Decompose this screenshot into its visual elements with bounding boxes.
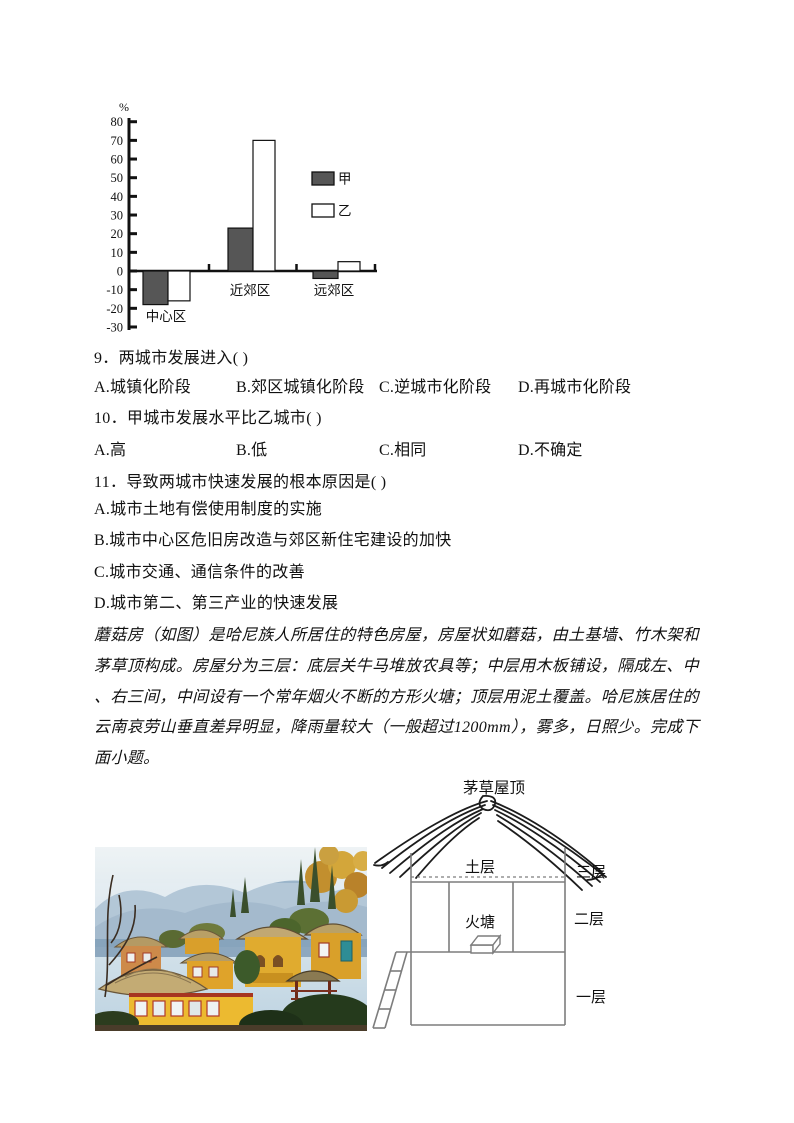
mushroom-house-passage: 蘑菇房（如图）是哈尼族人所居住的特色房屋，房屋状如蘑菇，由土基墙、竹木架和 茅草…: [94, 621, 724, 775]
svg-text:0: 0: [117, 265, 123, 279]
option-b: B.郊区城镇化阶段: [236, 380, 364, 396]
svg-text:50: 50: [111, 171, 124, 185]
svg-text:20: 20: [111, 227, 124, 241]
svg-text:40: 40: [111, 190, 124, 204]
exam-page: -30-20-1001020304050607080%中心区近郊区远郊区甲乙 9…: [0, 0, 794, 1123]
svg-text:近郊区: 近郊区: [230, 282, 271, 298]
svg-text:60: 60: [111, 153, 124, 167]
passage-line: 、右三间，中间设有一个常年烟火不断的方形火塘；顶层用泥土覆盖。哈尼族居住的: [94, 683, 724, 714]
svg-text:30: 30: [111, 209, 124, 223]
roof-label: 茅草屋顶: [463, 779, 525, 797]
svg-text:-20: -20: [106, 302, 123, 316]
urbanization-bar-chart: -30-20-1001020304050607080%中心区近郊区远郊区甲乙: [80, 95, 390, 340]
question-9-options: A.城镇化阶段 B.郊区城镇化阶段 C.逆城市化阶段 D.再城市化阶段: [94, 380, 754, 400]
svg-text:-30: -30: [106, 320, 123, 334]
option-d: D.再城市化阶段: [518, 380, 631, 396]
question-text: 导致两城市快速发展的根本原因是( ): [126, 474, 386, 491]
svg-text:甲: 甲: [338, 172, 352, 187]
question-10-stem: 10．甲城市发展水平比乙城市( ): [94, 411, 322, 427]
svg-text:乙: 乙: [338, 204, 352, 219]
option-c: C.逆城市化阶段: [379, 380, 491, 396]
option-a: A.城镇化阶段: [94, 380, 191, 396]
first-floor-label: 一层: [576, 990, 606, 1006]
svg-text:80: 80: [111, 115, 124, 129]
option-d: D.不确定: [518, 443, 583, 459]
second-floor-label: 二层: [574, 912, 604, 928]
svg-text:远郊区: 远郊区: [314, 282, 355, 298]
question-number: 10．: [94, 410, 127, 427]
foreground-building: [129, 993, 253, 1029]
firepit-box: [471, 936, 500, 953]
question-text: 两城市发展进入( ): [119, 350, 249, 367]
question-text: 甲城市发展水平比乙城市( ): [127, 410, 322, 427]
third-floor-label: 三层: [576, 865, 606, 881]
question-9-stem: 9．两城市发展进入( ): [94, 351, 248, 367]
option-c: C.相同: [379, 443, 426, 459]
passage-line: 茅草顶构成。房屋分为三层：底层关牛马堆放农具等；中层用木板铺设，隔成左、中: [94, 652, 724, 683]
option-a: A.高: [94, 443, 126, 459]
passage-line: 蘑菇房（如图）是哈尼族人所居住的特色房屋，房屋状如蘑菇，由土基墙、竹木架和: [94, 621, 724, 652]
question-11-stem: 11．导致两城市快速发展的根本原因是( ): [94, 475, 386, 491]
question-number: 9．: [94, 350, 119, 367]
question-11-option-b: B.城市中心区危旧房改造与郊区新住宅建设的加快: [94, 533, 452, 549]
option-b: B.低: [236, 443, 267, 459]
svg-text:中心区: 中心区: [146, 309, 187, 324]
question-11-option-d: D.城市第二、第三产业的快速发展: [94, 596, 338, 612]
question-number: 11．: [94, 474, 126, 491]
question-11-option-c: C.城市交通、通信条件的改善: [94, 565, 305, 581]
svg-text:-10: -10: [106, 283, 123, 297]
question-10-options: A.高 B.低 C.相同 D.不确定: [94, 443, 754, 463]
house-structure-diagram: 茅草屋顶: [370, 775, 620, 1037]
svg-text:10: 10: [111, 246, 124, 260]
svg-text:70: 70: [111, 134, 124, 148]
soil-layer-label: 土层: [465, 859, 495, 876]
ladder: [373, 952, 407, 1028]
svg-text:%: %: [119, 100, 129, 114]
village-photo: [95, 847, 367, 1031]
passage-line: 云南哀劳山垂直差异明显，降雨量较大（一般超过1200mm），雾多，日照少。完成下: [94, 713, 724, 744]
firepit-label: 火塘: [465, 914, 495, 931]
passage-line: 面小题。: [94, 744, 724, 775]
question-11-option-a: A.城市土地有偿使用制度的实施: [94, 502, 322, 518]
